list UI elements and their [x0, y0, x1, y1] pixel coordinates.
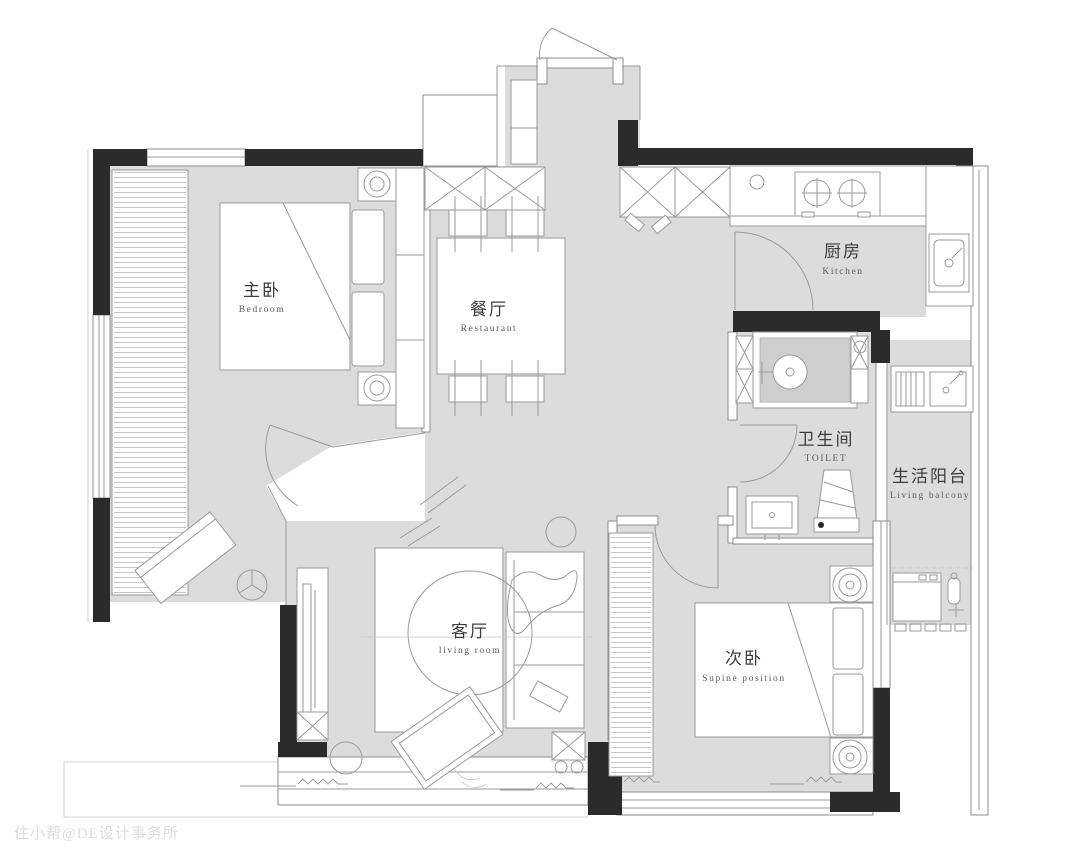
stove	[795, 172, 880, 217]
label-dining-zh: 餐厅	[470, 300, 508, 319]
label-living-en: living room	[439, 646, 501, 656]
label-kitchen-en: Kitchen	[822, 267, 863, 277]
label-dining-en: Restaurant	[461, 324, 518, 334]
label-toilet-zh: 卫生间	[798, 430, 855, 449]
entry-closet	[511, 80, 537, 164]
balcony-sill-blocks	[895, 624, 966, 631]
kitchen-sink	[929, 234, 969, 292]
floorplan-canvas: 主卧 Bedroom 餐厅 Restaurant 厨房 Kitchen 卫生间 …	[0, 0, 1080, 864]
ledge-above-dining	[423, 95, 497, 166]
floorplan-svg: 主卧 Bedroom 餐厅 Restaurant 厨房 Kitchen 卫生间 …	[0, 0, 1080, 864]
window-left-master	[93, 315, 110, 498]
label-master-bedroom-zh: 主卧	[243, 281, 281, 300]
label-bedroom2-zh: 次卧	[725, 649, 763, 668]
sofa	[506, 552, 584, 728]
pillow	[352, 210, 384, 284]
cabinet-x-small	[297, 712, 328, 740]
pillow	[352, 292, 384, 366]
shoe-cabinet-left	[425, 167, 545, 210]
label-toilet-en: TOILET	[805, 454, 848, 464]
pillow	[833, 608, 863, 669]
wall-toilet-bottom	[733, 538, 880, 544]
wall-toilet-right	[876, 332, 887, 540]
label-living-zh: 客厅	[451, 622, 489, 641]
label-balcony-en: Living balcony	[890, 491, 970, 501]
kitchen-floor	[622, 217, 926, 317]
watermark: 住小帮@DE设计事务所	[14, 822, 179, 843]
toilet-sink	[746, 496, 798, 540]
label-balcony-zh: 生活阳台	[892, 467, 968, 486]
wall-bedroom2-top-left	[617, 516, 658, 525]
label-master-bedroom-en: Bedroom	[239, 305, 286, 315]
wall-toilet-left-lower	[728, 487, 737, 543]
wall-bedroom2-top-right	[718, 516, 733, 525]
laundry-sink	[891, 366, 973, 412]
label-kitchen-zh: 厨房	[824, 242, 862, 261]
wardrobe-master	[396, 168, 424, 428]
label-bedroom2-en: Supine position	[702, 674, 785, 684]
tv-cabinet	[297, 568, 328, 733]
pillow	[833, 674, 863, 735]
bed-master	[220, 203, 350, 370]
